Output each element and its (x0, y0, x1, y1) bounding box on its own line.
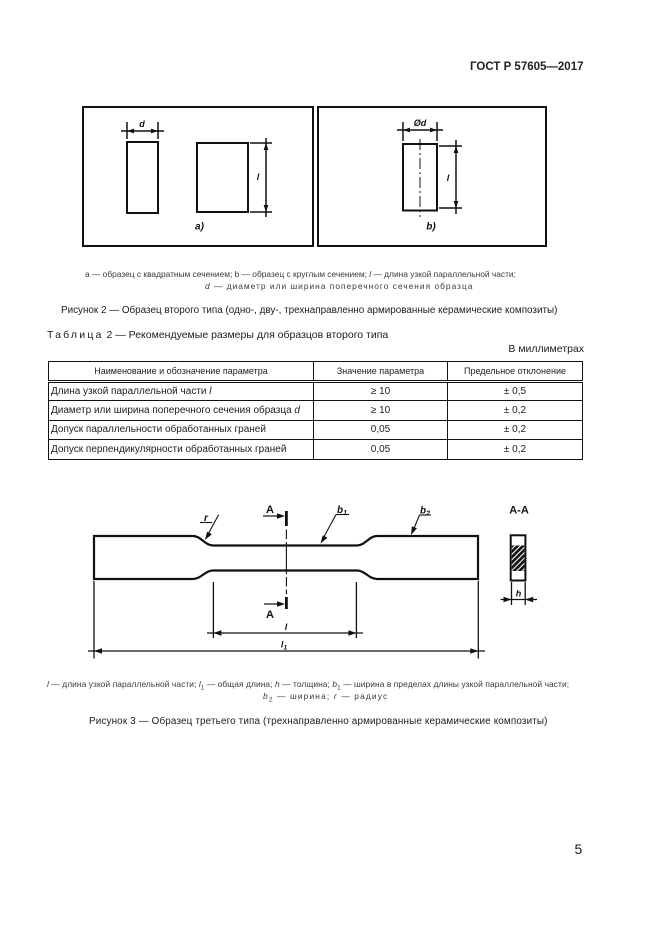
svg-text:b): b) (426, 222, 436, 233)
svg-text:b2: b2 (420, 506, 430, 518)
svg-text:b1: b1 (337, 505, 347, 517)
svg-text:l1: l1 (281, 640, 288, 652)
svg-text:a): a) (195, 222, 205, 233)
svg-text:А: А (266, 504, 274, 516)
svg-text:Ød: Ød (414, 118, 427, 128)
svg-text:d: d (139, 119, 145, 129)
svg-text:А-А: А-А (509, 505, 529, 517)
svg-text:l: l (257, 172, 260, 182)
svg-text:l: l (447, 173, 450, 183)
svg-text:l: l (285, 622, 288, 632)
svg-text:А: А (266, 609, 274, 621)
svg-text:h: h (516, 589, 522, 599)
